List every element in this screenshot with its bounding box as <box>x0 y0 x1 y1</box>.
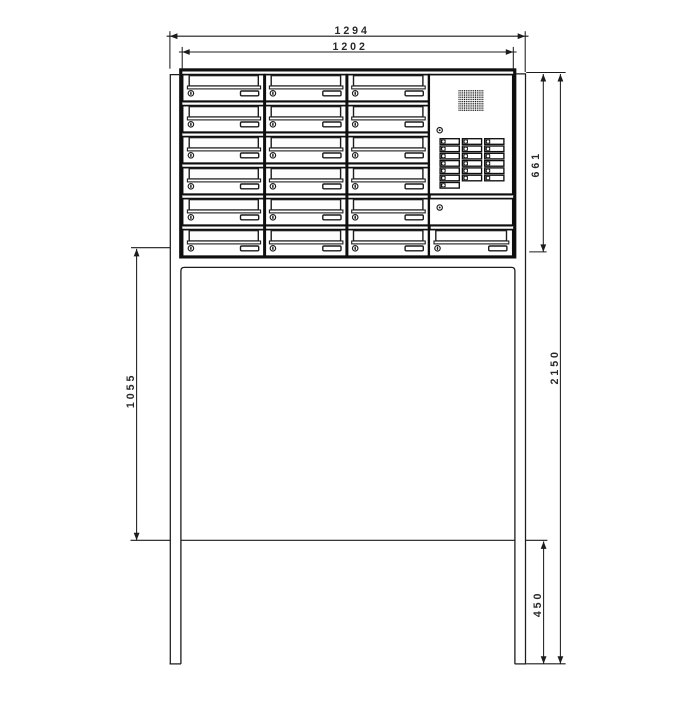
svg-text:1294: 1294 <box>335 25 370 37</box>
svg-text:661: 661 <box>530 151 542 178</box>
svg-text:1055: 1055 <box>125 373 137 408</box>
svg-text:1202: 1202 <box>333 41 368 53</box>
svg-text:2150: 2150 <box>549 349 561 384</box>
svg-text:450: 450 <box>532 591 544 618</box>
